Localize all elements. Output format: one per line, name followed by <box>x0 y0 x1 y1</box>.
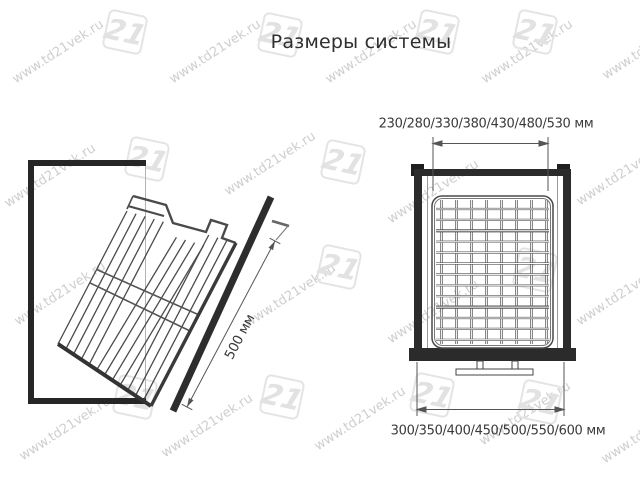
pullout-basket-wires <box>58 211 236 406</box>
diagram-canvas: www.td21vek.ruwww.td21vek.ruwww.td21vek.… <box>0 0 640 480</box>
dimension-line-500 <box>182 238 281 410</box>
right-top-dimension-label: 230/280/330/380/430/480/530 мм <box>379 117 594 132</box>
page-title: Размеры системы <box>0 31 640 53</box>
wire-basket-grid <box>436 200 549 344</box>
technical-drawing <box>0 0 640 480</box>
right-bottom-dimension-label: 300/350/400/450/500/550/600 мм <box>391 424 606 439</box>
door-panel <box>173 197 289 411</box>
cabinet-frame-side <box>28 160 146 404</box>
mount-pedestal <box>456 361 533 375</box>
